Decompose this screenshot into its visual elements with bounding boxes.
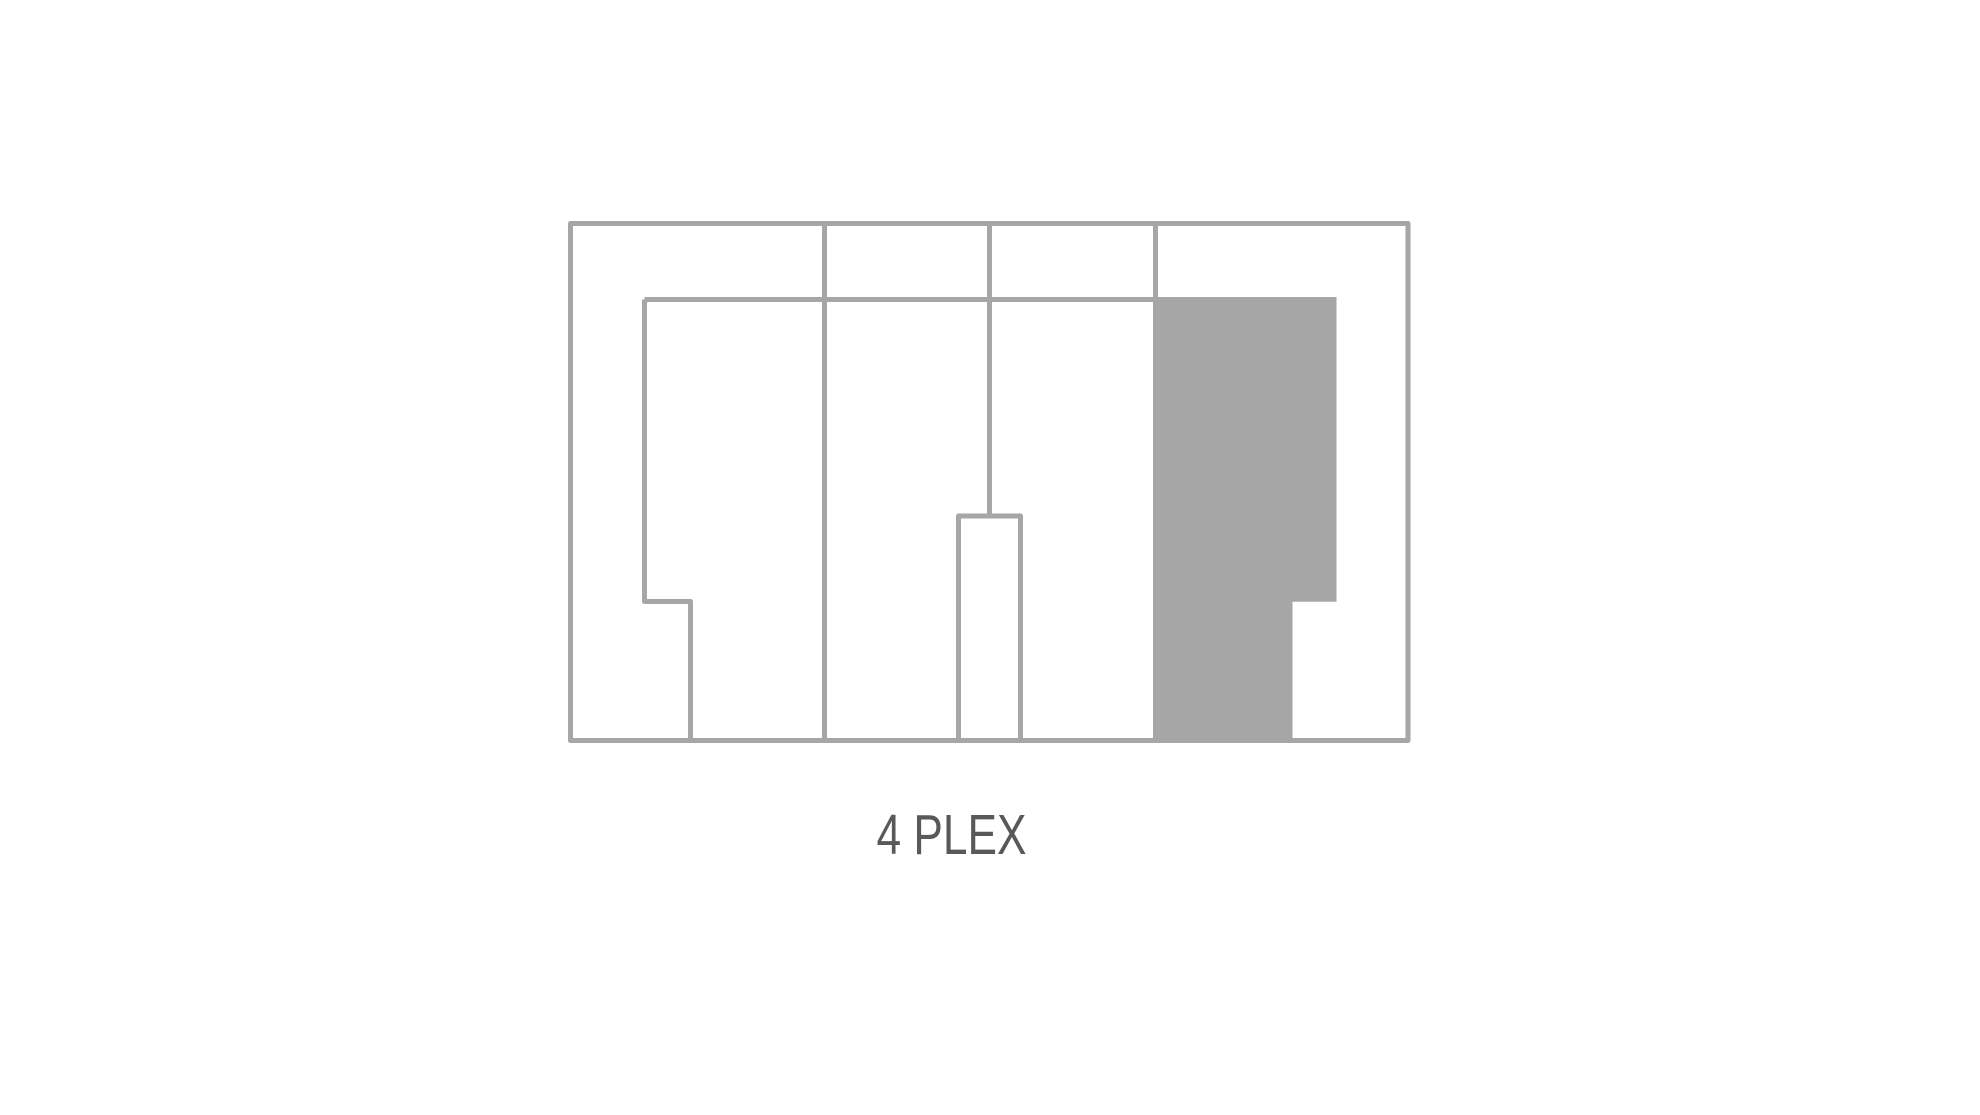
svg-text:4 PLEX: 4 PLEX <box>877 803 1027 867</box>
